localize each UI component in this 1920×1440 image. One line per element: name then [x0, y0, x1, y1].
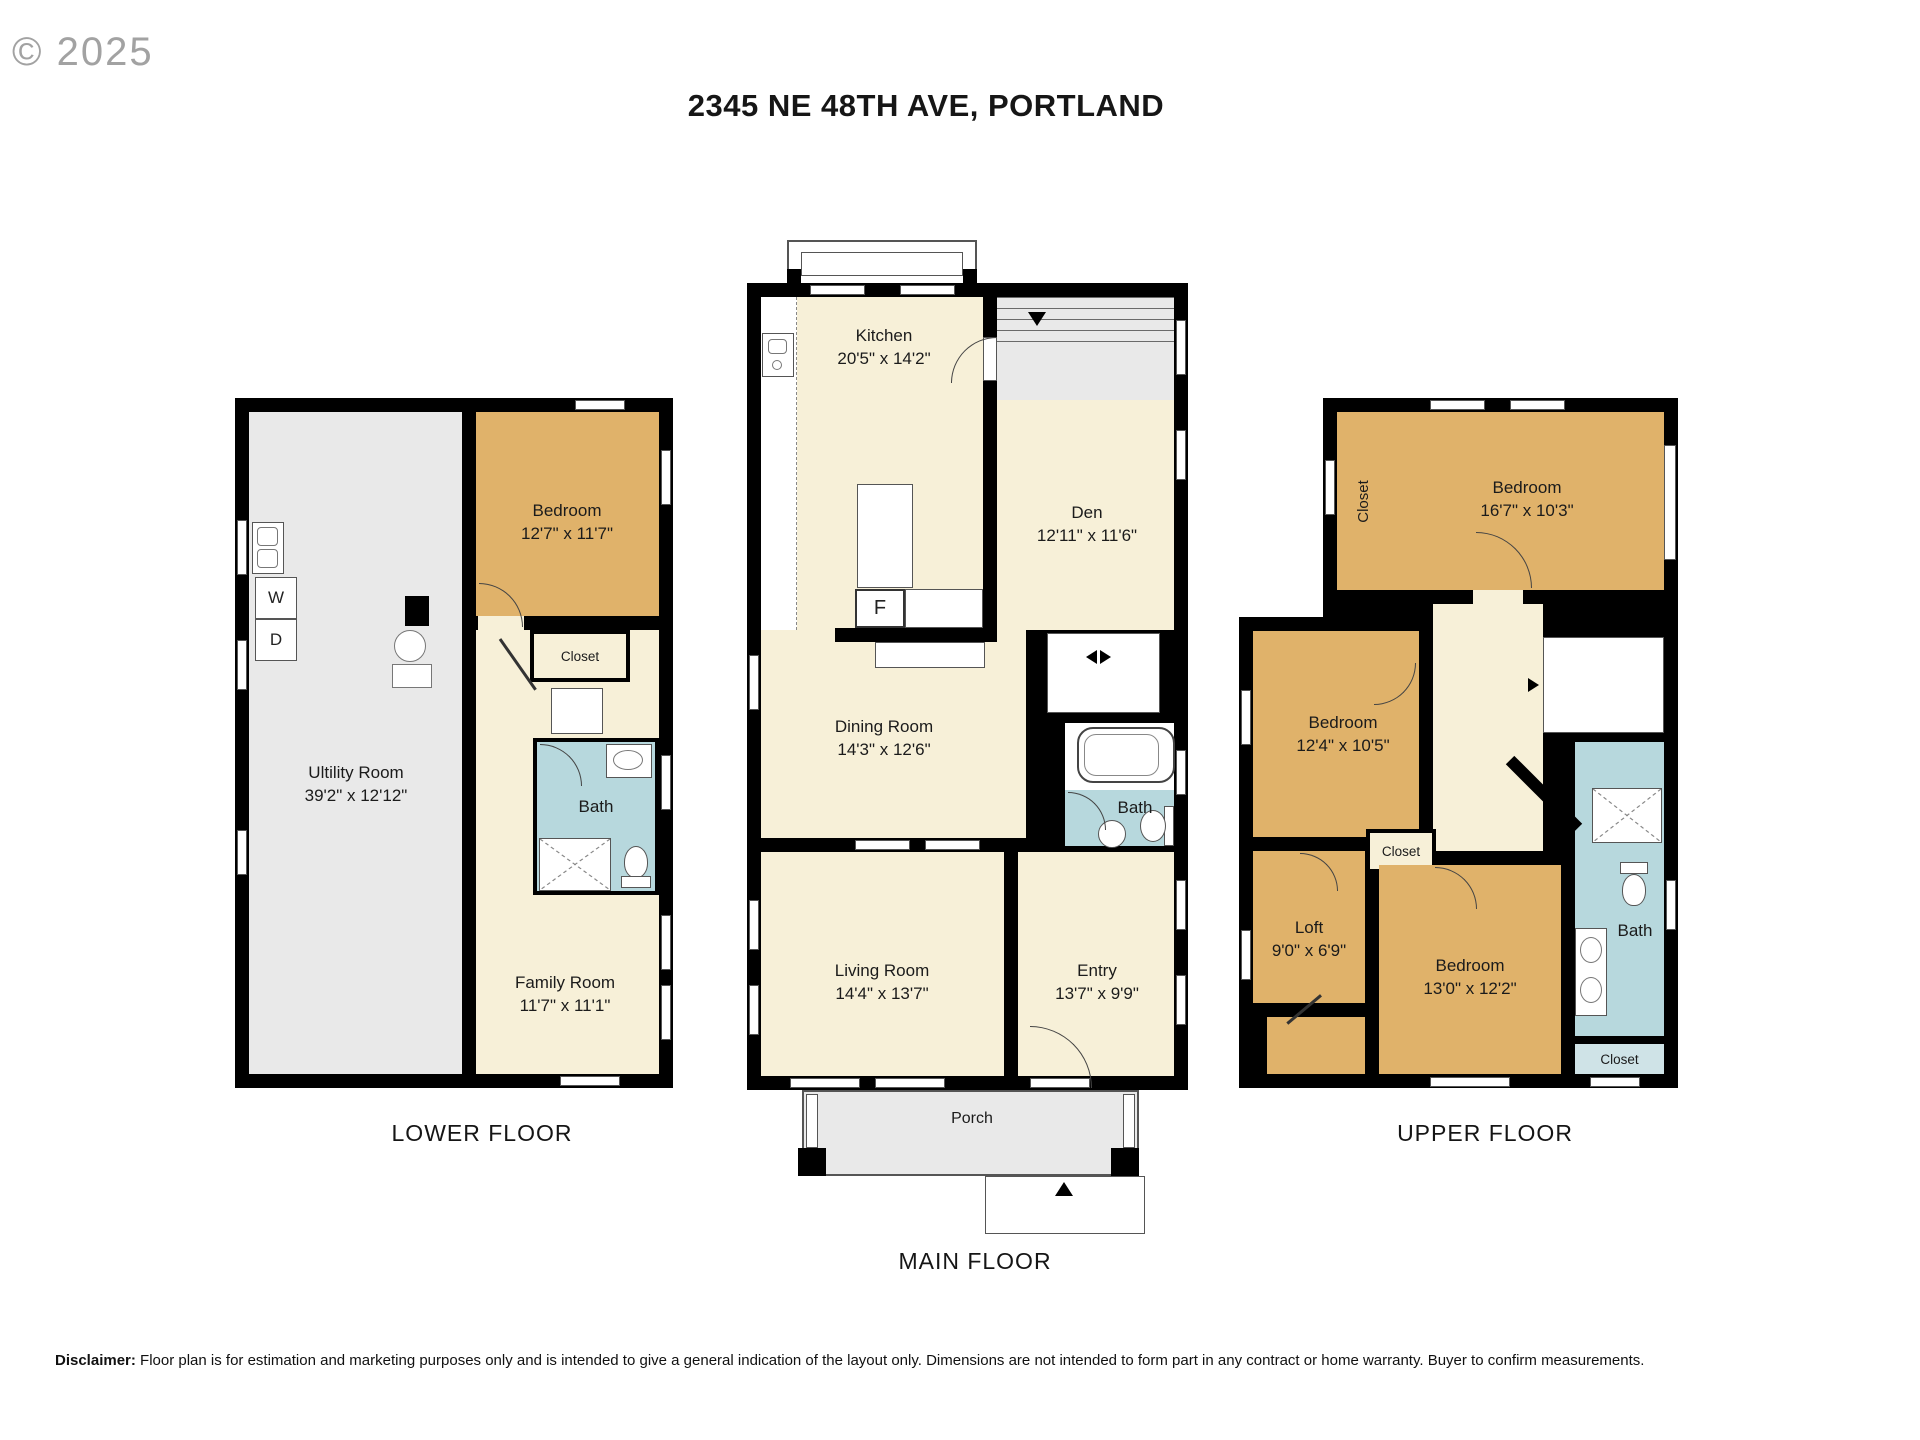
window: [560, 1076, 620, 1086]
lower-stairs: [551, 688, 603, 734]
sink-basin: [613, 750, 643, 770]
lower-shower-icon: [539, 838, 611, 891]
window: [1176, 430, 1186, 480]
lower-utility-room: [249, 412, 462, 1074]
lower-closet-label: Closet: [561, 649, 599, 664]
upper-shower-icon: [1592, 788, 1662, 843]
window: [237, 830, 247, 875]
upper-toilet-tank-icon: [1620, 862, 1648, 874]
dryer-label: D: [270, 630, 282, 650]
bay-window-inner: [801, 252, 963, 276]
window: [749, 985, 759, 1035]
disclaimer: Disclaimer: Floor plan is for estimation…: [55, 1352, 1870, 1369]
fridge-box: F: [855, 589, 905, 628]
lower-bath-sink-icon: [606, 744, 652, 778]
main-stairs-landing: [997, 352, 1174, 400]
washer-label: W: [268, 588, 284, 608]
window: [1664, 445, 1676, 560]
window: [661, 755, 671, 810]
counter-top: [905, 589, 983, 628]
shower-x: [1593, 789, 1661, 842]
dining-room-label: Dining Room 14'3" x 12'6": [784, 716, 984, 762]
main-bath-label: Bath: [1095, 797, 1175, 820]
sink-basin: [257, 549, 278, 568]
upper-closet-bath-label: Closet: [1600, 1052, 1638, 1067]
lower-bath-label: Bath: [556, 796, 636, 819]
window: [790, 1078, 860, 1088]
window: [1590, 1077, 1640, 1087]
bay-post: [787, 269, 801, 283]
window: [749, 900, 759, 950]
upper-stairs-arrow-icon: [1528, 678, 1539, 692]
lower-bedroom-label: Bedroom 12'7" x 11'7": [477, 500, 657, 546]
kitchen-label: Kitchen 20'5" x 14'2": [784, 325, 984, 371]
den-label: Den 12'11" x 11'6": [987, 502, 1187, 548]
page-title: 2345 NE 48TH AVE, PORTLAND: [656, 88, 1196, 124]
window: [1325, 460, 1335, 515]
upper-floor-title: UPPER FLOOR: [1285, 1120, 1685, 1147]
window: [855, 840, 910, 850]
chimney-block: [405, 596, 429, 626]
water-heater-icon: [394, 630, 426, 662]
window: [810, 285, 865, 295]
window: [1176, 880, 1186, 930]
window: [237, 520, 247, 575]
disclaimer-text: Floor plan is for estimation and marketi…: [136, 1352, 1645, 1369]
window: [1176, 320, 1186, 375]
bathtub-icon: [1077, 727, 1175, 783]
upper-closet-top-label: Closet: [1355, 480, 1372, 523]
loft-label: Loft 9'0" x 6'9": [1249, 917, 1369, 963]
stairs-arrow-left-icon: [1086, 650, 1097, 664]
window: [1510, 400, 1565, 410]
lower-floor-title: LOWER FLOOR: [282, 1120, 682, 1147]
disclaimer-label: Disclaimer:: [55, 1352, 136, 1369]
front-door-gap: [1030, 1078, 1090, 1088]
upper-closet-top: Closet: [1337, 412, 1390, 590]
window: [661, 450, 671, 505]
porch-corner-post: [798, 1148, 826, 1176]
main-floor-title: MAIN FLOOR: [775, 1248, 1175, 1275]
upper-closet-mid-label: Closet: [1382, 844, 1420, 859]
utility-room-label: Ultility Room 39'2" x 12'12": [256, 762, 456, 808]
upper-toilet-bowl-icon: [1622, 874, 1646, 906]
window: [925, 840, 980, 850]
upper-bedroom-bottom-label: Bedroom 13'0" x 12'2": [1370, 955, 1570, 1001]
washer-box: W: [255, 577, 297, 619]
vanity-sink-icon: [1580, 977, 1602, 1003]
window: [1430, 400, 1485, 410]
main-stairs-up: [1047, 633, 1160, 713]
utility-box-icon: [392, 664, 432, 688]
window: [661, 915, 671, 970]
porch-post: [1123, 1094, 1135, 1148]
lower-toilet-tank-icon: [621, 876, 651, 888]
porch: [802, 1090, 1139, 1176]
fridge-label: F: [874, 597, 886, 620]
dryer-box: D: [255, 619, 297, 661]
sink-basin: [257, 527, 278, 546]
window: [1430, 1077, 1510, 1087]
bay-window: [787, 240, 977, 285]
steps-up-arrow-icon: [1055, 1182, 1073, 1196]
floorplan-page: © 2025 2345 NE 48TH AVE, PORTLAND Closet…: [0, 0, 1920, 1440]
window: [900, 285, 955, 295]
bay-post: [963, 269, 977, 283]
laundry-sink-icon: [252, 522, 284, 574]
upper-stairs: [1543, 637, 1664, 733]
upper-bedroom-mid-label: Bedroom 12'4" x 10'5": [1243, 712, 1443, 758]
shower-x: [540, 839, 610, 890]
stairs-down-arrow-icon: [1028, 312, 1046, 326]
entry-label: Entry 13'7" x 9'9": [997, 960, 1197, 1006]
upper-closet-bath: Closet: [1575, 1044, 1664, 1074]
counter-below: [875, 642, 985, 668]
dining-top-wall: [835, 628, 997, 642]
lower-toilet-bowl-icon: [624, 846, 648, 878]
family-room-label: Family Room 11'7" x 11'1": [465, 972, 665, 1018]
upper-bedroom-top-label: Bedroom 16'7" x 10'3": [1427, 477, 1627, 523]
upper-bath-label: Bath: [1595, 920, 1675, 943]
main-stairs-down: [997, 297, 1174, 352]
window: [875, 1078, 945, 1088]
stairs-arrow-right-icon: [1100, 650, 1111, 664]
bathtub-inner: [1084, 734, 1159, 776]
upper-hall: [1433, 604, 1543, 851]
window: [575, 400, 625, 410]
living-entry-wall-top: [1004, 852, 1018, 932]
porch-label: Porch: [902, 1108, 1042, 1130]
upper-bedroom-top-door-gap: [1473, 590, 1523, 604]
window: [237, 640, 247, 690]
window: [749, 655, 759, 710]
lower-closet: Closet: [530, 630, 630, 682]
living-entry-wall-bottom: [1004, 1000, 1018, 1076]
window: [1176, 750, 1186, 795]
upper-closet-loft: [1267, 1017, 1365, 1074]
sink-faucet: [772, 360, 782, 370]
living-room-label: Living Room 14'4" x 13'7": [782, 960, 982, 1006]
kitchen-island: [857, 484, 913, 588]
porch-post: [806, 1094, 818, 1148]
porch-corner-post: [1111, 1148, 1139, 1176]
copyright-watermark: © 2025: [12, 30, 154, 75]
